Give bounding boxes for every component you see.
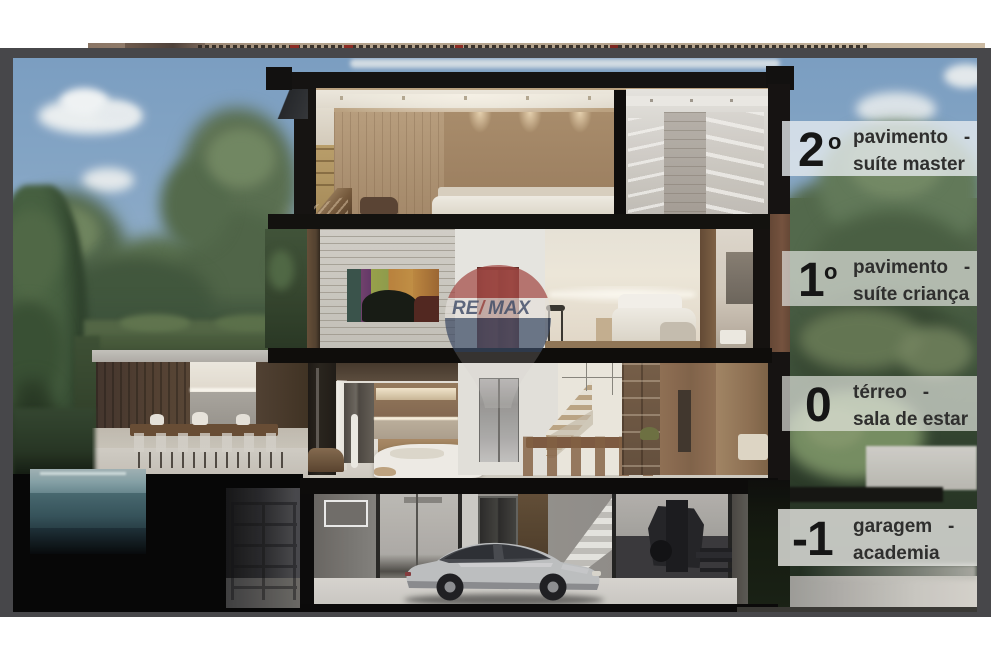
svg-text:MAX: MAX: [488, 298, 532, 319]
svg-text:RE: RE: [452, 298, 480, 319]
